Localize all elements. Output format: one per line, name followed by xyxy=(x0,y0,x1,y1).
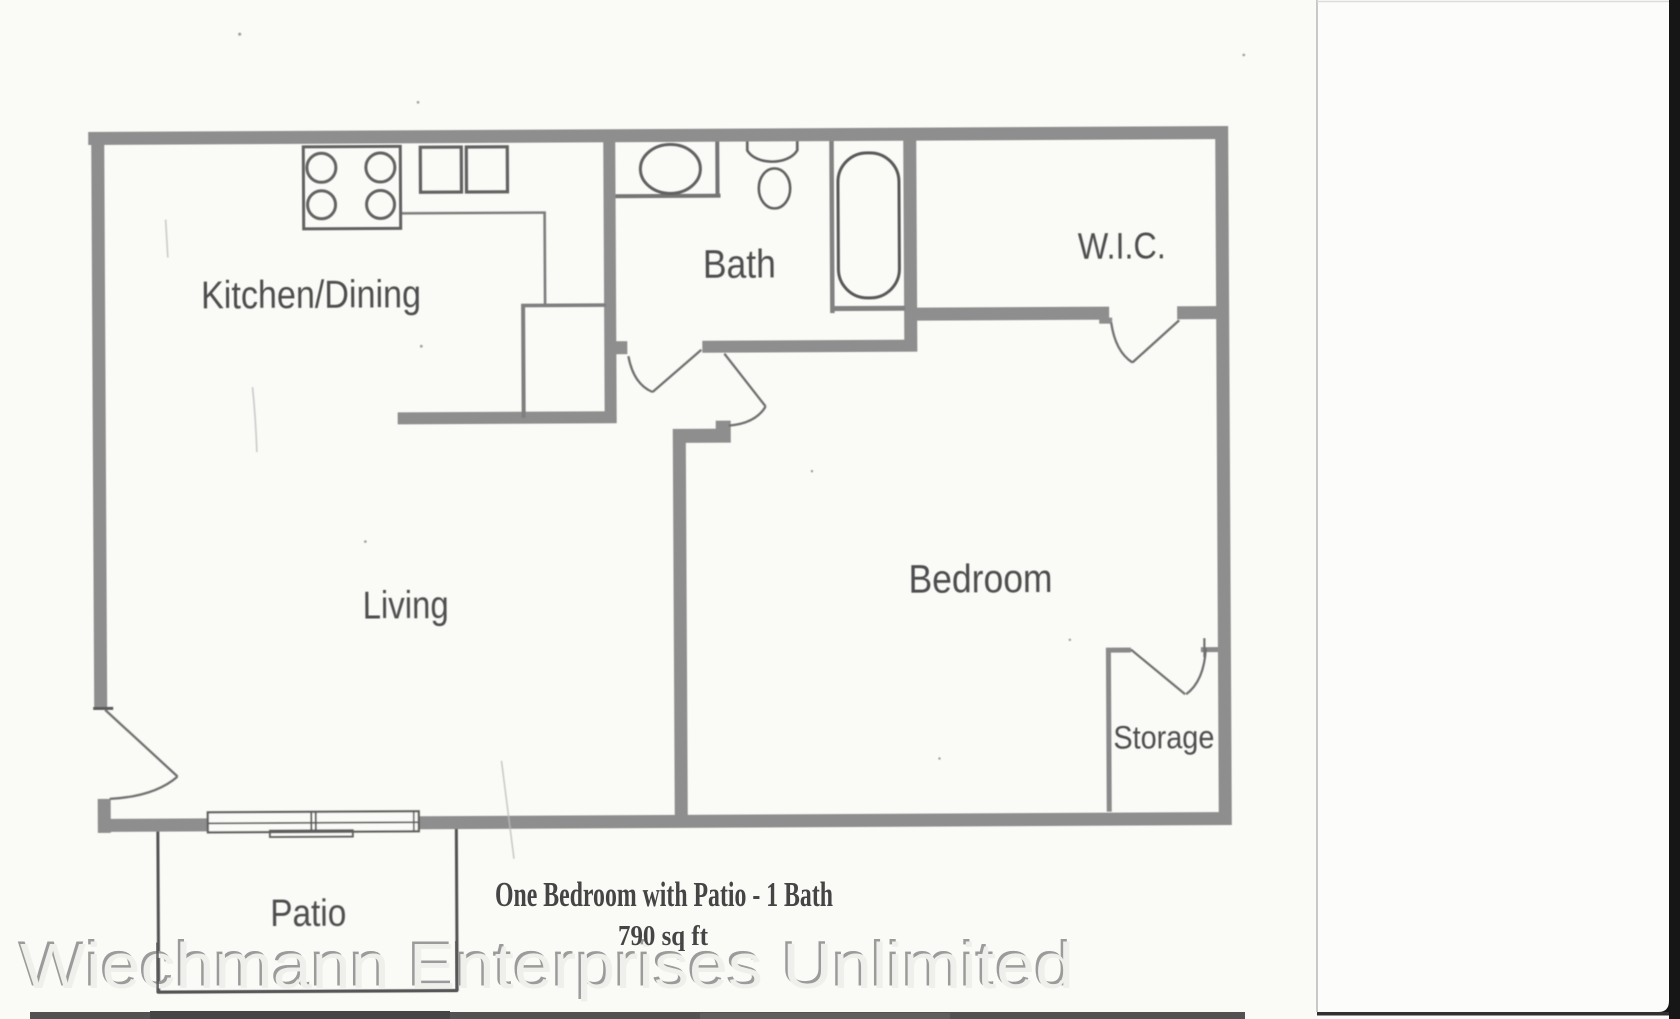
svg-text:Living: Living xyxy=(363,584,449,627)
svg-text:W.I.C.: W.I.C. xyxy=(1078,225,1166,266)
svg-text:Kitchen/Dining: Kitchen/Dining xyxy=(201,273,421,317)
svg-text:Storage: Storage xyxy=(1113,719,1214,756)
svg-text:Bedroom: Bedroom xyxy=(908,557,1052,602)
svg-text:One Bedroom with Patio - 1 Bat: One Bedroom with Patio - 1 Bath xyxy=(495,875,833,914)
svg-text:Bath: Bath xyxy=(703,242,776,286)
svg-text:790 sq ft: 790 sq ft xyxy=(618,920,708,952)
